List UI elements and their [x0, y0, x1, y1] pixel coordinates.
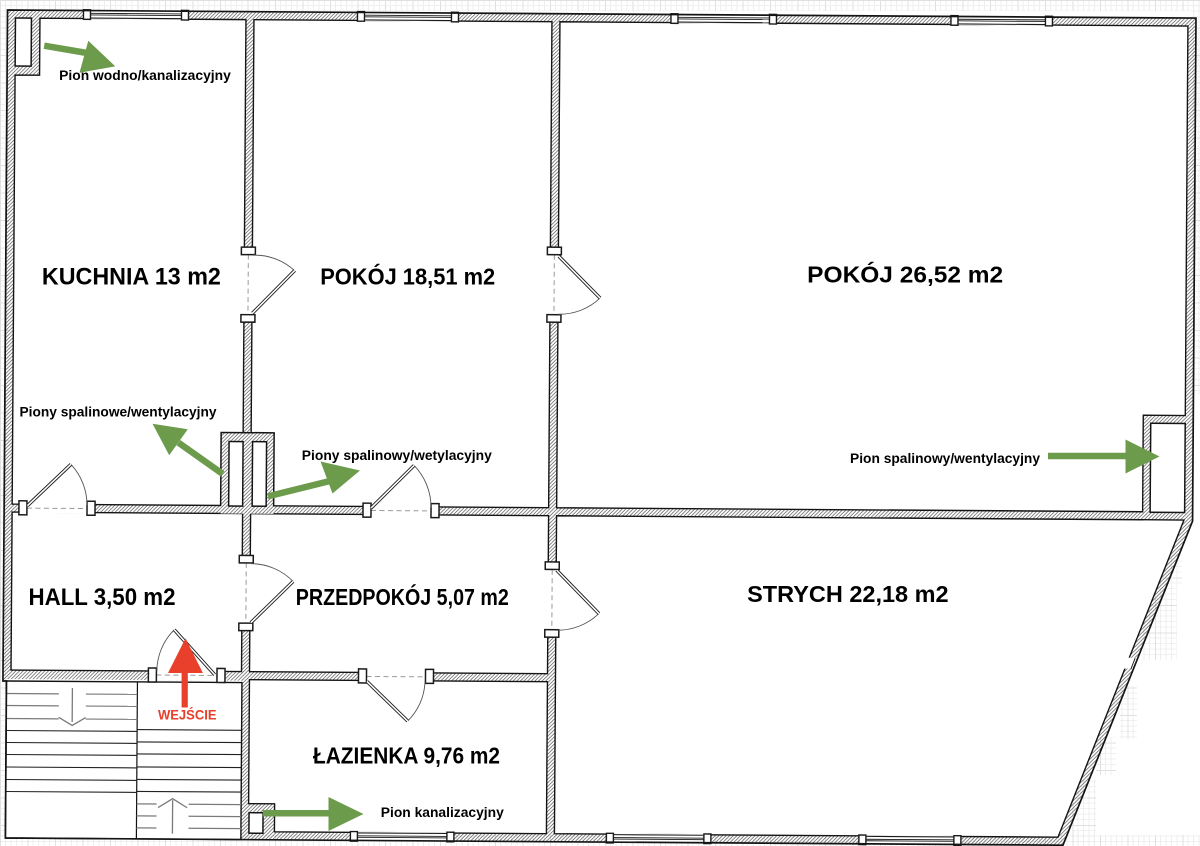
svg-text:HALL 3,50 m2: HALL 3,50 m2	[29, 584, 176, 611]
svg-text:Piony spalinowe/wentylacyjny: Piony spalinowe/wentylacyjny	[20, 405, 217, 420]
svg-text:KUCHNIA 13 m2: KUCHNIA 13 m2	[42, 264, 221, 291]
svg-text:ŁAZIENKA 9,76 m2: ŁAZIENKA 9,76 m2	[313, 743, 500, 769]
svg-text:Piony spalinowy/wetylacyjny: Piony spalinowy/wetylacyjny	[302, 448, 492, 463]
svg-text:WEJŚCIE: WEJŚCIE	[158, 707, 217, 722]
svg-text:Pion kanalizacyjny: Pion kanalizacyjny	[381, 805, 504, 820]
svg-text:Pion spalinowy/wentylacyjny: Pion spalinowy/wentylacyjny	[850, 451, 1040, 466]
svg-text:STRYCH 22,18 m2: STRYCH 22,18 m2	[747, 581, 949, 607]
svg-text:PRZEDPOKÓJ 5,07 m2: PRZEDPOKÓJ 5,07 m2	[296, 583, 509, 610]
svg-text:POKÓJ 18,51 m2: POKÓJ 18,51 m2	[320, 262, 495, 289]
svg-text:POKÓJ 26,52 m2: POKÓJ 26,52 m2	[807, 261, 1003, 288]
